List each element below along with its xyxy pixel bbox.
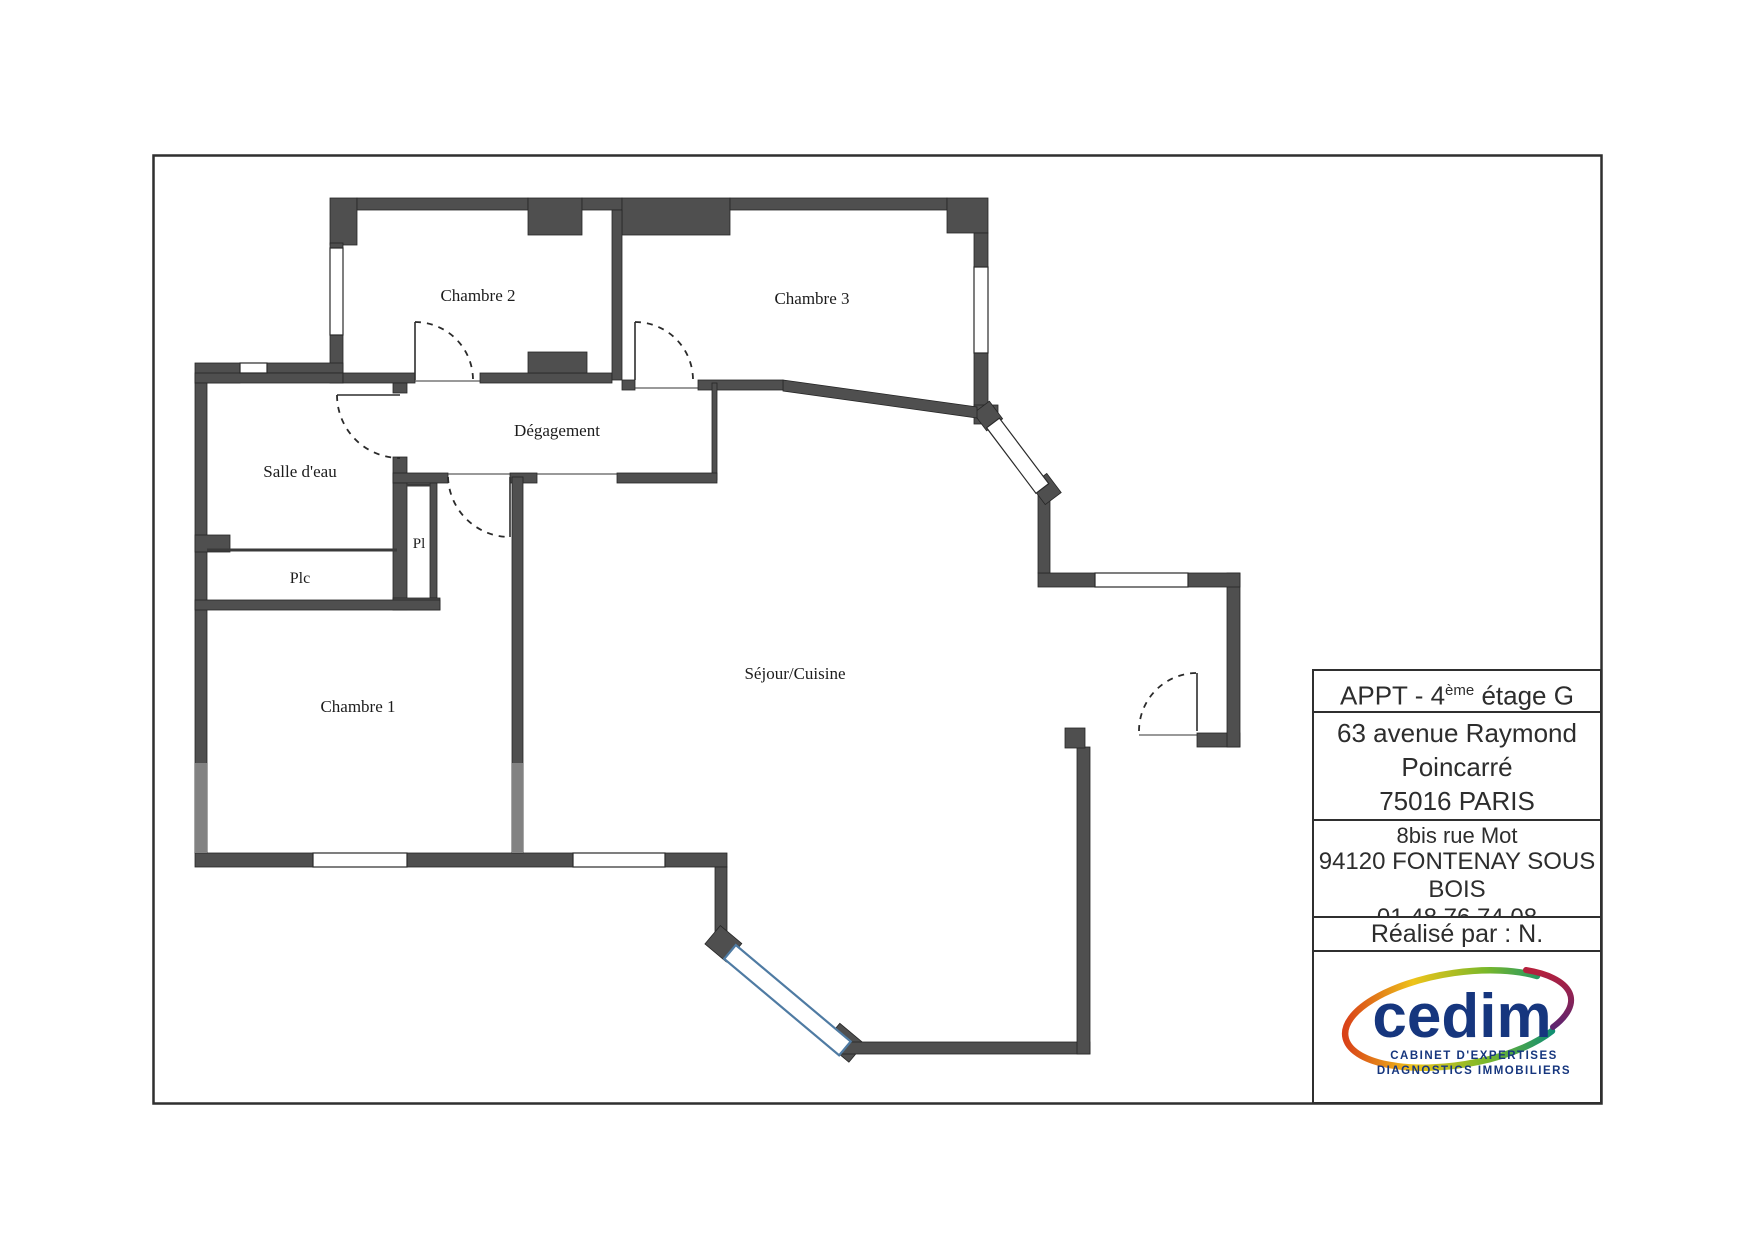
wall-light	[195, 763, 207, 853]
room-label-chambre-3: Chambre 3	[774, 289, 849, 308]
title-block-logo: cedim CABINET D'EXPERTISES DIAGNOSTICS I…	[1314, 952, 1600, 1094]
room-label-pl: Pl	[413, 536, 426, 552]
office-line-3: 01 48 76 74 08	[1314, 904, 1600, 918]
wall	[582, 198, 622, 210]
walls-light	[195, 763, 523, 853]
wall	[343, 373, 415, 383]
apartment-title-suffix: étage G	[1474, 681, 1574, 711]
wall	[947, 198, 988, 233]
wall-pillar	[1065, 728, 1085, 748]
wall	[1227, 573, 1240, 747]
title-block-address: 63 avenue Raymond Poincarré 75016 PARIS	[1314, 713, 1600, 821]
door-arc-salle-deau	[337, 395, 400, 458]
room-label-chambre-1: Chambre 1	[320, 697, 395, 716]
wall	[838, 1042, 1090, 1054]
address-line-2: Poincarré	[1314, 750, 1600, 784]
window-protrusion-top	[1095, 573, 1188, 587]
apartment-title-prefix: APPT - 4	[1340, 681, 1445, 711]
wall	[393, 483, 407, 610]
door-arc-chambre2	[415, 322, 473, 380]
wall	[974, 233, 988, 267]
room-label-degagement: Dégagement	[514, 421, 600, 440]
logo-wordmark: cedim	[1372, 982, 1551, 1051]
office-line-1: 8bis rue Mot	[1314, 823, 1600, 848]
door-arc-chambre3	[635, 322, 693, 380]
wall-chimney	[528, 198, 582, 235]
wall	[1077, 747, 1090, 1054]
wall	[195, 853, 313, 867]
wall	[195, 373, 343, 383]
wall	[195, 600, 440, 610]
logo-caption-line2: DIAGNOSTICS IMMOBILIERS	[1377, 1065, 1571, 1077]
screenshot-canvas: { "page": { "background": "#ffffff", "bo…	[0, 0, 1754, 1239]
wall	[1038, 573, 1095, 587]
bay-window	[724, 945, 850, 1055]
wall	[974, 353, 988, 410]
wall	[393, 473, 448, 483]
wall	[357, 198, 528, 210]
window-sejour-bottom	[573, 853, 665, 867]
wall	[665, 853, 727, 867]
window-salle-deau-top	[240, 363, 267, 373]
wall	[730, 198, 947, 210]
apartment-title-sup: ème	[1445, 682, 1474, 699]
door-arc-chambre1-entry	[448, 477, 510, 537]
wall	[407, 853, 573, 867]
wall	[393, 383, 407, 393]
wall	[480, 373, 612, 383]
room-labels: Chambre 2 Chambre 3 Salle d'eau Dégageme…	[263, 286, 849, 716]
author-text: Réalisé par : N. CONSOLIN	[1371, 920, 1543, 952]
wall	[622, 380, 635, 390]
title-block: APPT - 4ème étage G 63 avenue Raymond Po…	[1312, 669, 1602, 1104]
title-block-author: Réalisé par : N. CONSOLIN	[1314, 918, 1600, 952]
door-arc-sejour	[1139, 673, 1197, 731]
wall	[617, 473, 717, 483]
window-chambre1-bottom-1	[313, 853, 407, 867]
room-label-sejour-cuisine: Séjour/Cuisine	[744, 664, 845, 683]
wall	[622, 198, 730, 235]
room-label-chambre-2: Chambre 2	[440, 286, 515, 305]
stepped-diagonal-wall	[783, 380, 977, 418]
wall-pillar	[528, 352, 587, 373]
address-line-3: 75016 PARIS	[1314, 784, 1600, 818]
address-line-1: 63 avenue Raymond	[1314, 716, 1600, 750]
title-block-apartment: APPT - 4ème étage G	[1314, 671, 1600, 713]
room-label-plc: Plc	[290, 570, 310, 587]
logo-caption-line1: CABINET D'EXPERTISES	[1390, 1050, 1558, 1062]
window-diagonal-ne	[987, 418, 1049, 493]
walls	[195, 198, 1240, 1062]
wall-light	[512, 763, 523, 853]
wall	[1188, 573, 1240, 587]
wall	[330, 198, 357, 245]
cedim-logo: cedim CABINET D'EXPERTISES DIAGNOSTICS I…	[1326, 957, 1588, 1089]
office-line-2: 94120 FONTENAY SOUS BOIS	[1314, 848, 1600, 904]
room-label-salle-deau: Salle d'eau	[263, 462, 337, 481]
wall	[430, 483, 437, 598]
wall	[712, 383, 717, 480]
window-chambre3-right	[974, 267, 988, 353]
wall	[267, 363, 343, 373]
wall	[330, 243, 343, 248]
wall	[698, 380, 783, 390]
title-block-office: 8bis rue Mot 94120 FONTENAY SOUS BOIS 01…	[1314, 821, 1600, 918]
window-chambre2-left	[330, 248, 343, 335]
wall-divider-ch2-ch3	[612, 210, 622, 380]
